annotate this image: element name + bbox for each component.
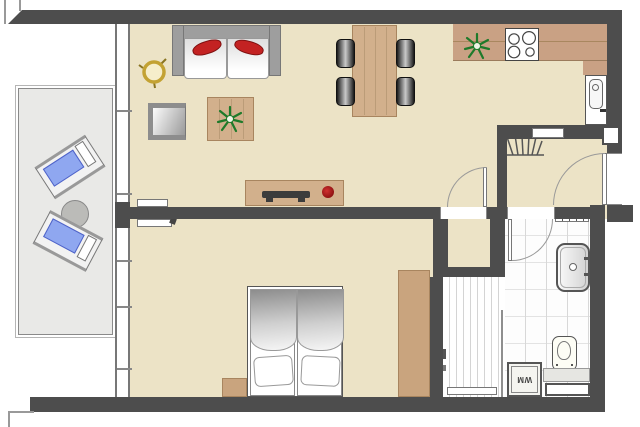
entrance-door-opening	[607, 153, 622, 205]
shower-left-wall	[430, 277, 443, 397]
toilet-bowl	[557, 341, 571, 360]
right-exterior-wall-lower	[590, 205, 605, 412]
bathroom-top-wall	[555, 207, 605, 219]
kitchen-sink-unit	[585, 75, 607, 125]
sink-drain	[592, 84, 599, 91]
cooktop	[505, 28, 539, 61]
living-bedroom-wall	[130, 207, 440, 219]
washing-machine-label: WM	[512, 367, 537, 392]
closet-right-wall	[490, 219, 505, 277]
bed-pillow-right	[300, 355, 341, 387]
nightstand	[222, 378, 247, 397]
window-mullion	[117, 368, 132, 370]
bathroom-niche-window	[545, 383, 590, 396]
closet-floor	[448, 219, 490, 267]
toilet	[552, 336, 577, 371]
armchair	[148, 103, 186, 140]
window-pier-wall	[115, 202, 130, 228]
balcony-screen-line	[4, 0, 6, 24]
bottom-exterior-wall	[30, 397, 605, 412]
bedroom-radiator	[137, 219, 172, 227]
side-stool	[138, 57, 170, 89]
dining-chair	[396, 39, 415, 68]
wardrobe	[398, 270, 430, 397]
tv	[262, 191, 310, 198]
wall-duct	[602, 126, 620, 145]
bathroom-ledge	[543, 368, 590, 382]
table-plank-line	[386, 27, 387, 115]
duvet-right	[297, 289, 344, 351]
basin-drain	[569, 263, 577, 271]
table-plank-line	[364, 27, 365, 115]
bed-pillow-left	[253, 355, 294, 388]
living-room-radiator	[137, 199, 168, 207]
window-mullion	[117, 306, 132, 308]
tv-foot	[298, 198, 305, 202]
table-plank-line	[375, 27, 376, 115]
balcony-screen-line	[19, 0, 21, 11]
shower-floor-tiles	[443, 277, 505, 397]
right-wall-step	[607, 205, 633, 222]
sofa-back	[172, 25, 281, 39]
window-mullion	[117, 193, 132, 195]
exterior-step-line	[8, 411, 10, 427]
coffee-table-plant-icon	[215, 104, 245, 134]
toilet-button	[556, 364, 558, 366]
hallway-wall-shelf	[532, 128, 564, 138]
basin-faucet	[584, 257, 589, 260]
dining-chair	[396, 77, 415, 106]
shower-bench	[447, 387, 497, 395]
duvet-left	[250, 289, 297, 351]
dining-table	[352, 25, 397, 117]
tv-foot	[266, 198, 273, 202]
window-mullion	[117, 260, 132, 262]
kitchen-counter-side	[583, 61, 607, 75]
toilet-button	[571, 364, 573, 366]
dining-chair	[336, 77, 355, 106]
sofa-armrest-left	[172, 25, 184, 76]
burner-circles	[506, 29, 538, 60]
kitchen-plant-icon	[462, 31, 492, 61]
wm-inner-frame: WM	[511, 366, 538, 393]
dining-chair	[336, 39, 355, 68]
top-exterior-wall	[8, 10, 620, 24]
bathroom-door-threshold	[507, 207, 555, 219]
red-flower-decoration	[322, 186, 334, 198]
floor-plan: WM	[0, 0, 640, 427]
sink-faucet	[600, 109, 606, 112]
window-mullion	[117, 110, 132, 112]
washbasin	[556, 243, 590, 292]
double-bed	[247, 286, 343, 397]
shower-glass-partition	[501, 310, 503, 397]
sideboard	[245, 180, 344, 206]
sofa-armrest-right	[269, 25, 281, 76]
hallway-left-wall	[497, 125, 507, 219]
living-door-threshold	[440, 207, 487, 219]
washing-machine: WM	[507, 362, 542, 397]
exterior-step-line	[8, 411, 34, 413]
basin-faucet	[584, 273, 589, 276]
sofa	[172, 25, 281, 80]
